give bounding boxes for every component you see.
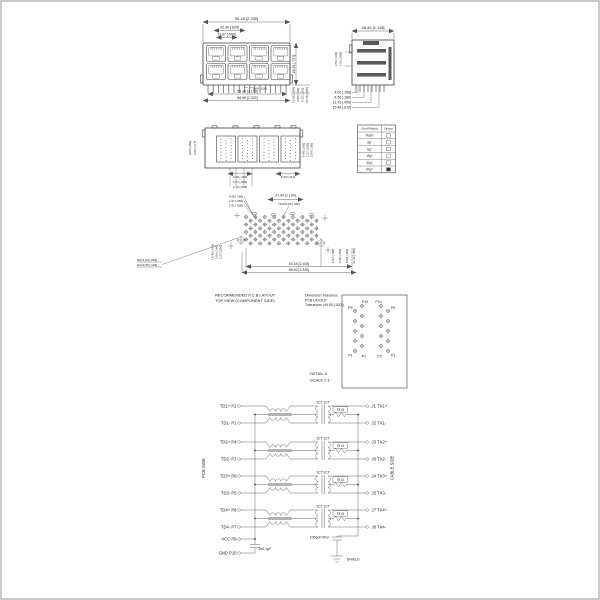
detail-pad-label-tl: P9: [348, 306, 352, 310]
detail-a-scale: SCALE 2:1: [310, 378, 331, 383]
schematic-output-label: J4 TX3+: [372, 474, 388, 479]
detail-pad-label-bl: P1: [348, 354, 352, 358]
pcb-callout-pads-label: 72x∅0.90 [.035]: [278, 202, 300, 206]
bottom-view: 9.00 [.354] 4.50 [.177] 4.06 [.160] 1.27…: [188, 126, 314, 189]
technical-drawing: 75 Ω 1CT:1CT 59.18 [2.330] 20.96 [.825] …: [0, 0, 600, 600]
pcb-note-line3: Tolerances (±0.05 [.002]): [305, 303, 344, 307]
shield-cap-label: 1000pF/2KV: [310, 536, 330, 540]
dim-side-l1-label: 3.56 [.140]: [334, 52, 338, 66]
schematic-input-label: TD4+ P8: [220, 508, 237, 513]
schematic-input-label: TD3+ P6: [220, 474, 237, 479]
schematic: TD1+ P2 TD1- P1 TD2+ P4 TD2- P3 TD3+ P6 …: [201, 401, 395, 563]
cable-side-label: CABLE SIDE: [390, 455, 395, 480]
schematic-output-label: J5 TX3-: [372, 491, 387, 496]
dim-bottom-l2-label: 4.50 [.177]: [193, 141, 197, 155]
dim-bottom-b3-label: 2.42 [.095]: [233, 185, 247, 189]
pcb-dim-b2-label: 58.92 [2.320]: [289, 268, 309, 272]
dim-bottom-l1-label: 9.00 [.354]: [188, 141, 192, 155]
pcb-callout-holes2-label: 2x∅3.25 [.128]: [137, 263, 157, 267]
pcb-note-line1: Dimension Tolerance:: [305, 294, 339, 298]
detail-pad-label-br: P1: [391, 354, 395, 358]
dim-bottom-b4-label: 5.40 [.213]: [281, 175, 295, 179]
pcb-notes: RECOMMENDED P.C.B LAYOUT TOP VIEW (COMPO…: [215, 293, 344, 308]
option-checkbox: [386, 134, 390, 138]
schematic-input-label: TD2+ P4: [220, 440, 237, 445]
pcb-dim-r4-label: 11.43 [.450]: [352, 248, 356, 264]
pcb-dim-t2-label: 1.27 [.050]: [229, 199, 243, 203]
table-row-label: 50µ": [366, 168, 373, 172]
pcb-dim-t3-label: 2.41 [.095]: [229, 204, 243, 208]
table-row-label: 3µ": [367, 141, 372, 145]
dim-right-3-label: 4.10 [.161]: [301, 88, 305, 102]
dim-depth-label: 28.49 [1.118]: [361, 25, 384, 30]
schematic-input-label: TD3- P5: [221, 491, 237, 496]
table-header-option: Option: [384, 127, 393, 131]
pcb-layout-view: 4.06 [.160] 1.27 [.050] 2.41 [.095] 27.9…: [137, 194, 356, 274]
datasheet-drawing-page: 75 Ω 1CT:1CT 59.18 [2.330] 20.96 [.825] …: [0, 0, 600, 600]
dim-right-1-label: 10.00 [.394]: [292, 87, 296, 103]
pcb-title-line2: TOP VIEW (COMPONENT SIDE): [215, 298, 275, 303]
front-view: 59.18 [2.330] 20.96 [.825] 13.97 [.550] …: [200, 16, 310, 103]
dim-overall-width-label: 59.18 [2.330]: [235, 16, 258, 21]
pcb-dim-r2-label: 6.35 [.250]: [338, 249, 342, 263]
dim-side-b4-label: 15.49 [.610]: [333, 106, 352, 110]
table-row-label: 6µ": [367, 147, 372, 151]
dim-height-label: 20.24 [.797]: [292, 55, 296, 74]
dim-body-width-label: 58.98 [2.322]: [237, 96, 257, 100]
pcb-dim-t1-label: 4.06 [.160]: [229, 195, 243, 199]
dim-pin-span-label: 53.34 [2.100]: [237, 90, 257, 94]
gnd-label: GND P10: [219, 551, 238, 556]
option-checkbox: [386, 154, 390, 158]
plating-table: Gold Plating Option Flash 3µ" 6µ" 15µ" 3…: [358, 125, 396, 173]
pcb-dim-l3-label: 1.27 [.050]: [219, 245, 223, 259]
detail-pad-label-bcl: P2: [362, 355, 366, 359]
detail-pad-label-bcr: P2: [377, 355, 381, 359]
schematic-input-label: TD4- P7: [221, 525, 237, 530]
pcb-dim-b1-label: 53.34 [2.100]: [289, 262, 309, 266]
schematic-output-label: J3 TX2+: [372, 440, 388, 445]
schematic-output-label: J1 TX1+: [372, 404, 388, 409]
dim-side-b2-label: 4.56 [.180]: [334, 96, 351, 100]
schematic-input-label: TD1- P1: [221, 421, 237, 426]
table-row-label: Flash: [366, 134, 374, 138]
option-checkbox-selected: [386, 168, 390, 172]
dim-bottom-b1-label: 4.06 [.160]: [233, 175, 247, 179]
option-checkbox: [386, 140, 390, 144]
detail-pad-label-tcl: P10: [362, 300, 368, 304]
detail-pad-label-tr: P9: [391, 306, 395, 310]
side-view: 28.49 [1.118] 3.56 [.140] 1.52 [.060] 4.…: [333, 25, 395, 110]
schematic-input-label: TD2- P3: [221, 457, 237, 462]
pcb-dim-span-label: 27.94 [1.100]: [275, 194, 295, 198]
table-row-label: 15µ": [366, 154, 373, 158]
schematic-output-label: J7 TX4+: [372, 508, 388, 513]
vcc-label: VCC P9: [221, 537, 237, 542]
pcb-dim-r1-label: 4.57 [.180]: [331, 249, 335, 263]
decoupling-cap-label: 2x0.1µF: [259, 547, 272, 551]
schematic-input-label: TD1+ P2: [220, 404, 237, 409]
pcb-title-line1: RECOMMENDED P.C.B LAYOUT: [215, 293, 276, 298]
dim-bottom-b2-label: 1.27 [.050]: [233, 180, 247, 184]
dim-right-2-label: 3.50 [.138]: [296, 88, 300, 102]
dim-side-l2-label: 1.52 [.060]: [339, 52, 343, 66]
schematic-output-label: J2 TX1-: [372, 421, 387, 426]
schematic-output-label: J8 TX4-: [372, 525, 387, 530]
table-row-label: 30µ": [366, 161, 373, 165]
dim-side-b1-label: 4.00 [.158]: [334, 91, 351, 95]
dim-port-width-label: 13.97 [.550]: [217, 33, 236, 37]
dim-right-4-label: 20.70 [.815]: [305, 87, 309, 103]
pcb-note-line2: PCB LAYOUT: [305, 298, 328, 302]
dim-port-pitch-label: 20.96 [.825]: [220, 26, 239, 30]
pcb-dim-r3-label: 8.89 [.350]: [345, 249, 349, 263]
detail-a-caption: DETAIL A: [310, 371, 327, 376]
schematic-output-label: J6 TX2-: [372, 457, 387, 462]
dim-side-b3-label: 11.43 [.450]: [333, 101, 351, 105]
shield-label: SHIELD: [347, 558, 360, 562]
option-checkbox: [386, 147, 390, 151]
detail-a-view: P9 P10 P10 P9 P1 P2 P2 P1 DETAIL A SCALE…: [310, 295, 407, 388]
option-checkbox: [386, 161, 390, 165]
pcb-side-label: PCB SIDE: [201, 458, 206, 478]
detail-pad-label-tcr: P10: [375, 300, 381, 304]
table-header-plating: Gold Plating: [361, 127, 378, 131]
pcb-callout-holes8-label: 8x∅1.60 [.063]: [137, 258, 157, 262]
dim-bottom-r3-label: 2.54 [.100]: [310, 143, 314, 157]
